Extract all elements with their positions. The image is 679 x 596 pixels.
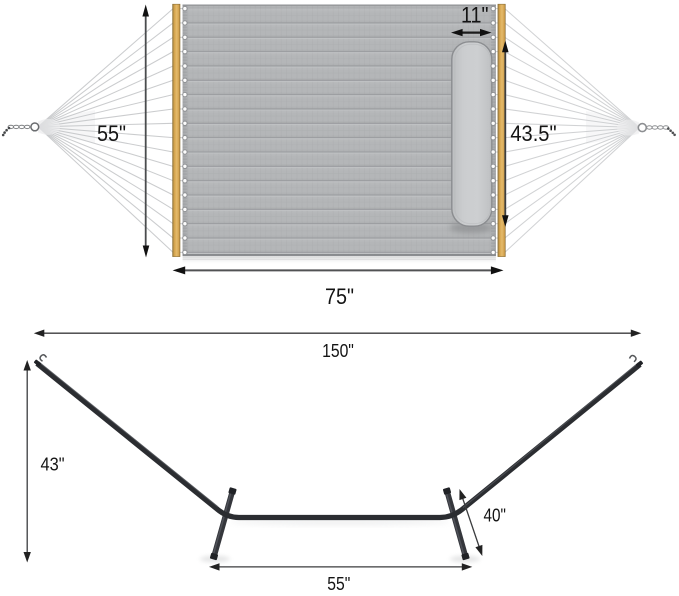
- svg-text:55": 55": [327, 573, 350, 591]
- svg-text:40": 40": [484, 505, 506, 526]
- svg-text:75": 75": [325, 284, 354, 309]
- svg-text:43": 43": [41, 454, 65, 475]
- svg-text:11": 11": [461, 3, 489, 28]
- svg-text:55": 55": [97, 121, 126, 146]
- svg-text:150": 150": [322, 340, 354, 361]
- svg-text:43.5": 43.5": [510, 121, 556, 146]
